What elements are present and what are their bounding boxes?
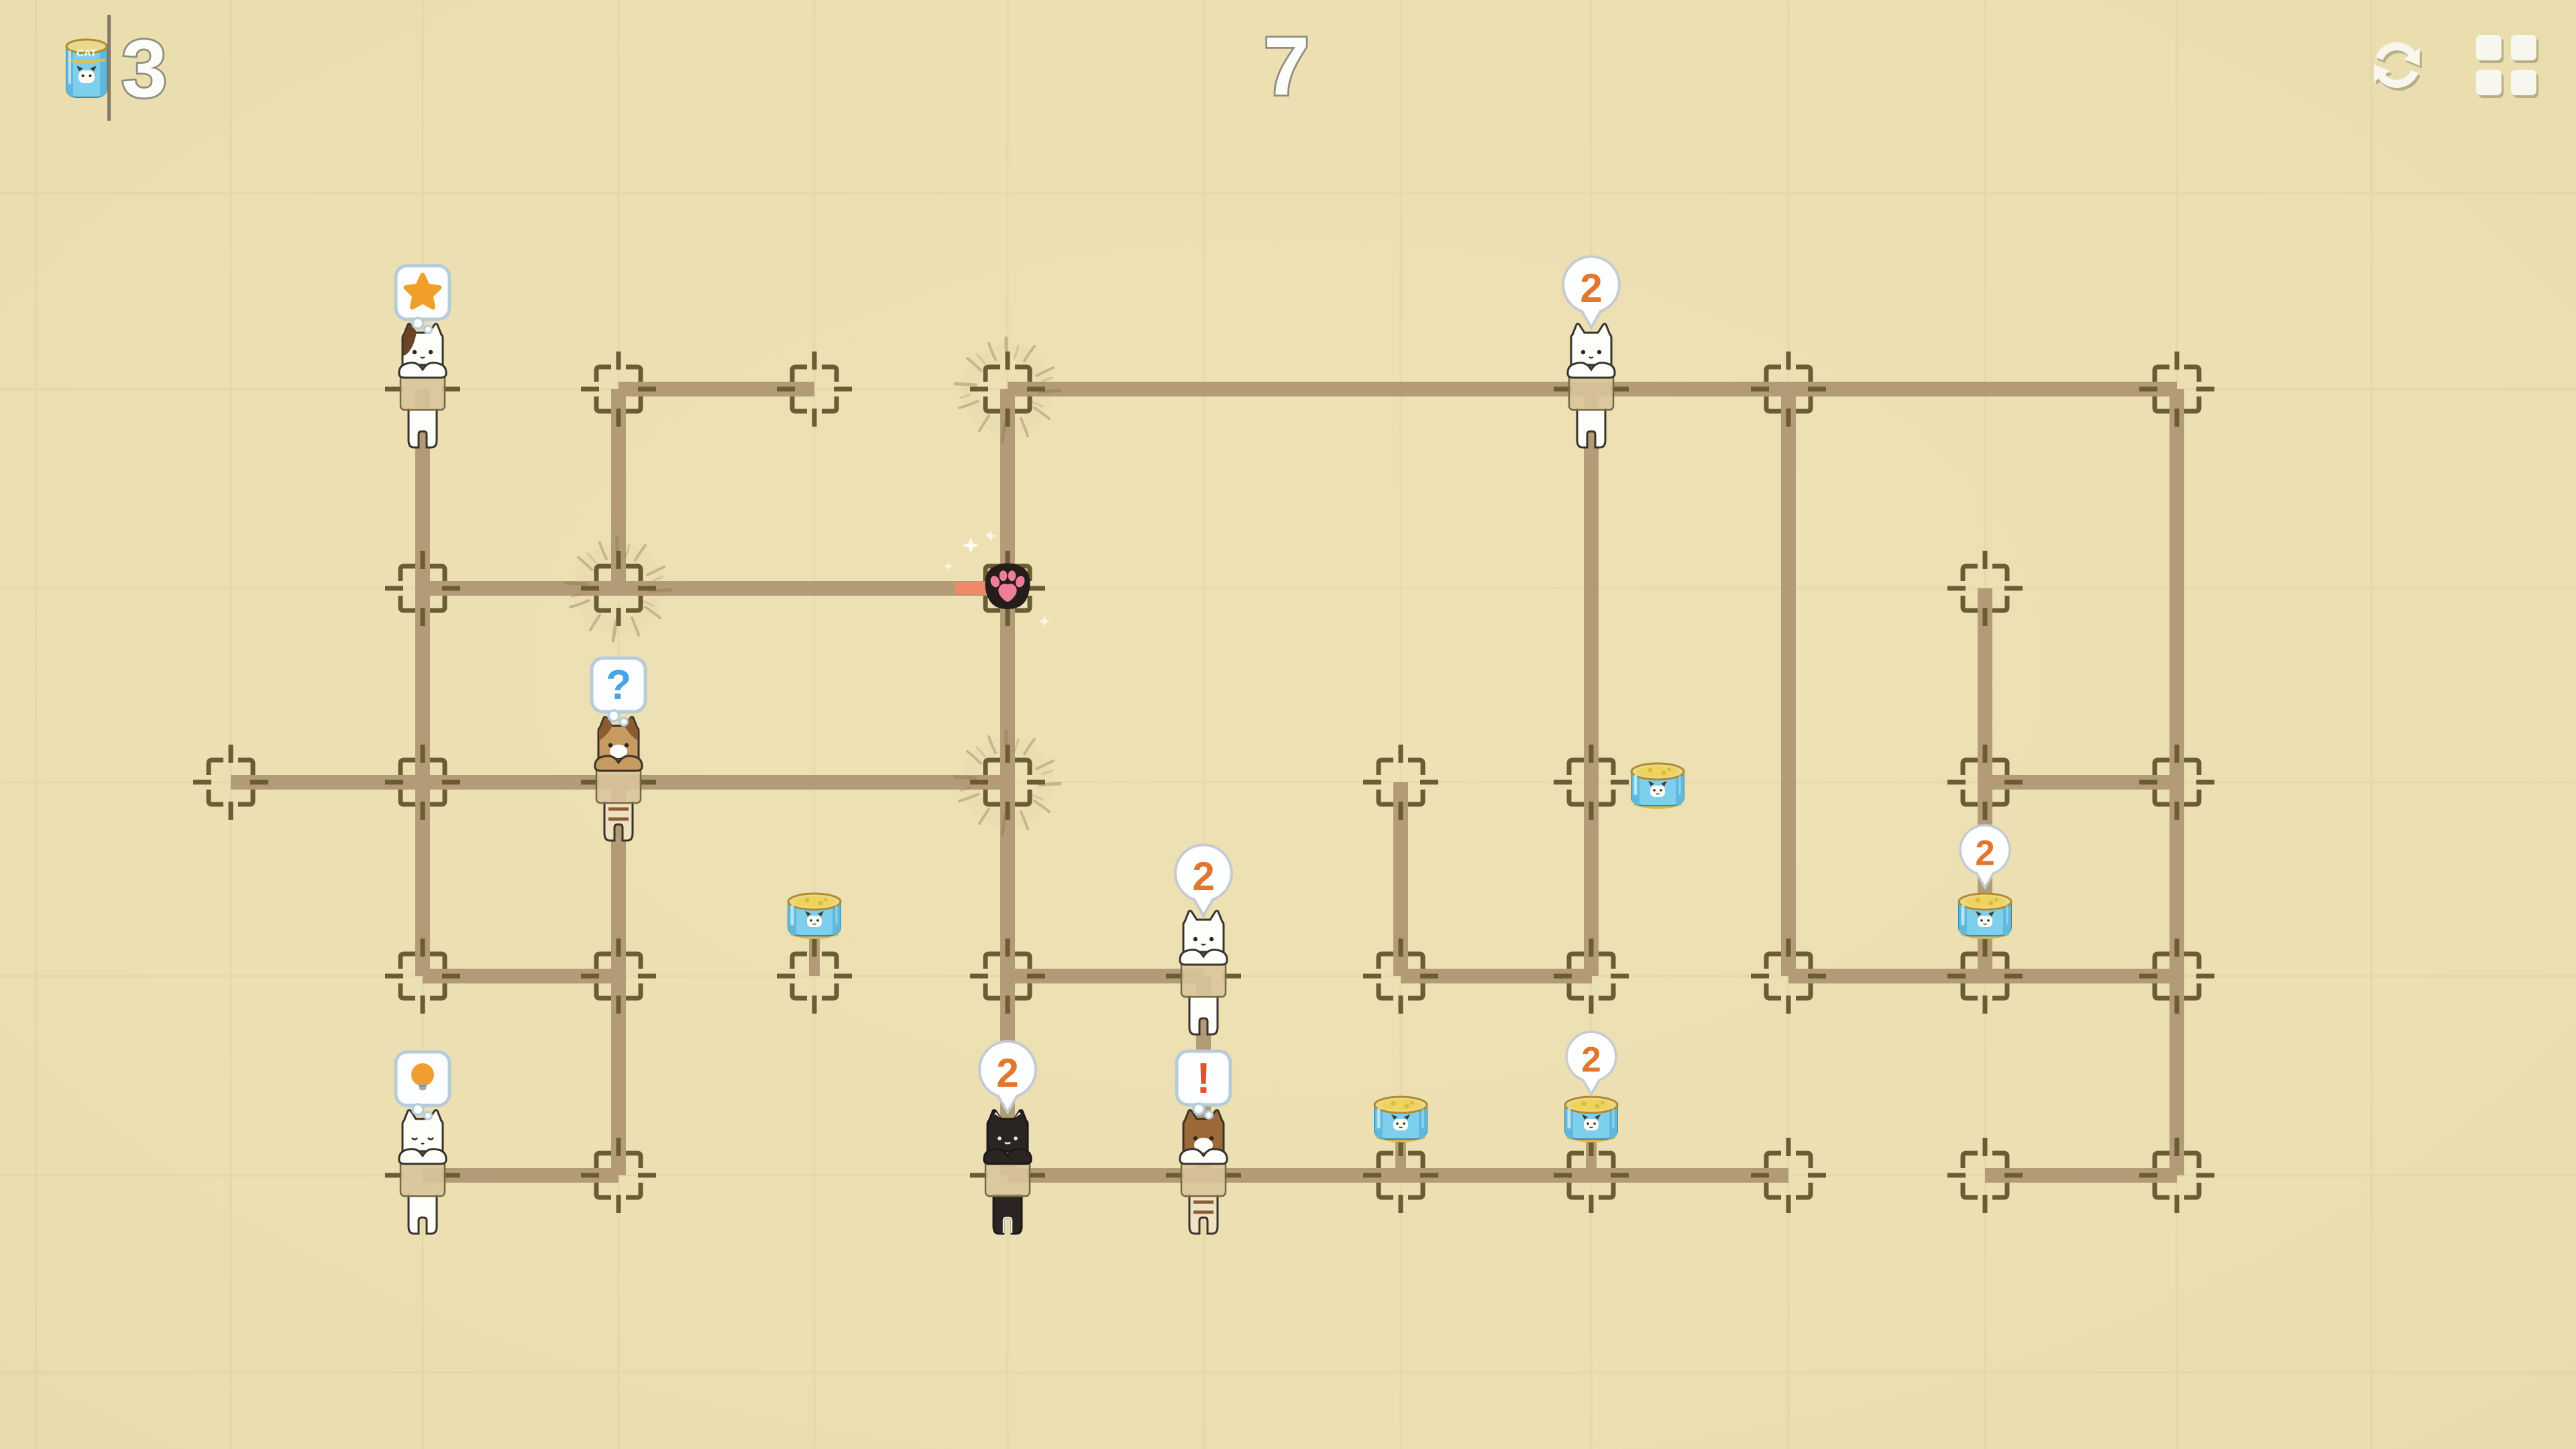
svg-text:!: ! xyxy=(1196,1054,1210,1102)
svg-text:3: 3 xyxy=(121,23,167,114)
svg-text:7: 7 xyxy=(1264,21,1309,113)
svg-text:CAT: CAT xyxy=(76,48,97,59)
svg-text:?: ? xyxy=(606,662,631,708)
